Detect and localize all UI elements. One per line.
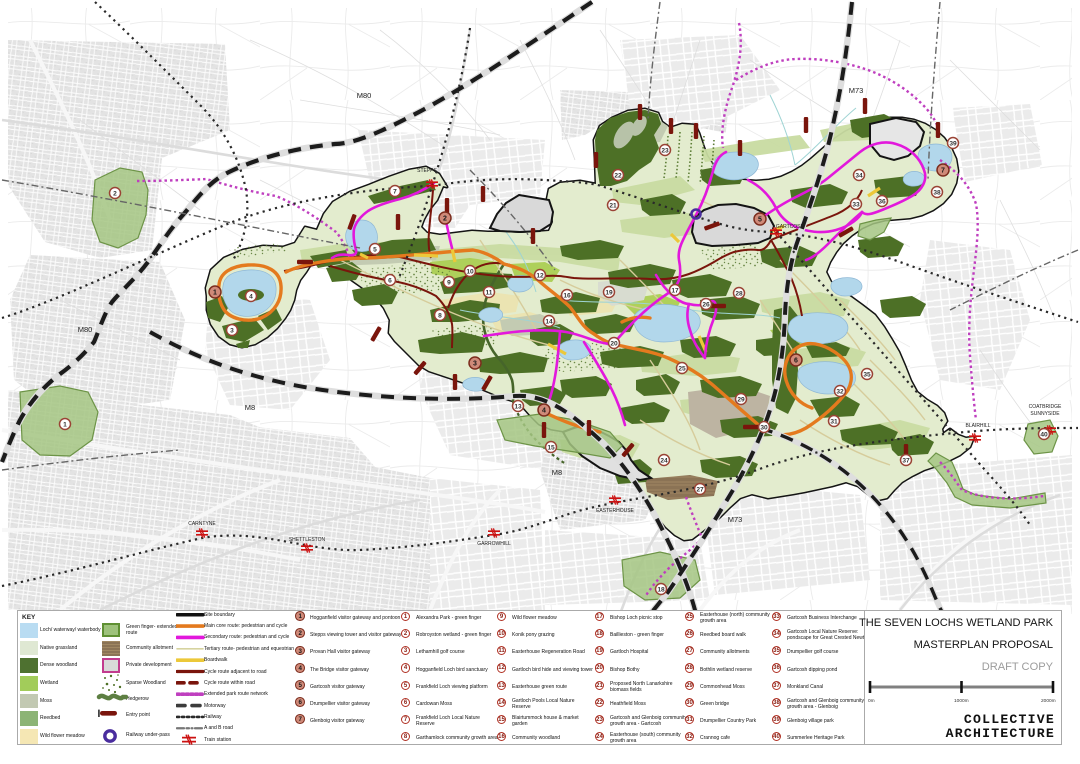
svg-text:CARNTYNE: CARNTYNE — [188, 521, 216, 527]
svg-text:22: 22 — [614, 172, 622, 179]
svg-text:26: 26 — [702, 301, 710, 308]
svg-text:12: 12 — [536, 272, 544, 279]
svg-text:33: 33 — [852, 201, 860, 208]
svg-text:2000m: 2000m — [1041, 698, 1056, 704]
svg-text:EASTERHOUSE: EASTERHOUSE — [596, 508, 634, 514]
svg-text:25: 25 — [678, 365, 686, 372]
svg-text:23: 23 — [661, 147, 669, 154]
svg-text:GARTCOSH: GARTCOSH — [776, 224, 805, 230]
svg-text:0m: 0m — [868, 698, 875, 704]
svg-text:1: 1 — [63, 421, 67, 428]
svg-text:4: 4 — [249, 293, 253, 300]
svg-text:28: 28 — [735, 290, 743, 297]
svg-text:17: 17 — [671, 287, 679, 294]
svg-text:4: 4 — [542, 407, 546, 414]
svg-text:2: 2 — [113, 190, 117, 197]
svg-text:M73: M73 — [849, 86, 864, 95]
svg-text:M8: M8 — [245, 403, 255, 412]
svg-text:24: 24 — [660, 457, 668, 464]
svg-text:3: 3 — [230, 327, 234, 334]
svg-text:30: 30 — [760, 424, 768, 431]
svg-text:16: 16 — [563, 292, 571, 299]
svg-text:40: 40 — [1040, 431, 1048, 438]
svg-text:38: 38 — [933, 189, 941, 196]
svg-text:5: 5 — [373, 246, 377, 253]
svg-text:21: 21 — [609, 202, 617, 209]
svg-text:8: 8 — [438, 312, 442, 319]
svg-text:M73: M73 — [728, 515, 743, 524]
svg-text:2: 2 — [443, 215, 447, 222]
svg-text:SUNNYSIDE: SUNNYSIDE — [1030, 411, 1060, 417]
svg-text:9: 9 — [447, 279, 451, 286]
svg-text:5: 5 — [758, 216, 762, 223]
svg-text:7: 7 — [941, 167, 945, 174]
svg-text:35: 35 — [863, 371, 871, 378]
svg-text:10: 10 — [466, 268, 474, 275]
svg-text:6: 6 — [388, 277, 392, 284]
svg-text:13: 13 — [514, 403, 522, 410]
svg-text:M8: M8 — [552, 468, 562, 477]
svg-text:18: 18 — [657, 586, 665, 593]
svg-text:36: 36 — [878, 198, 886, 205]
svg-text:GARROWHILL: GARROWHILL — [477, 541, 511, 547]
svg-text:M80: M80 — [357, 91, 372, 100]
svg-text:37: 37 — [902, 457, 910, 464]
svg-text:32: 32 — [836, 388, 844, 395]
svg-text:20: 20 — [610, 340, 618, 347]
svg-text:27: 27 — [696, 486, 704, 493]
svg-text:29: 29 — [737, 396, 745, 403]
svg-text:7: 7 — [393, 188, 397, 195]
svg-text:19: 19 — [605, 289, 613, 296]
svg-text:SHETTLESTON: SHETTLESTON — [289, 537, 326, 543]
svg-text:14: 14 — [545, 318, 553, 325]
svg-text:39: 39 — [949, 140, 957, 147]
svg-text:1000m: 1000m — [954, 698, 969, 704]
svg-text:34: 34 — [855, 172, 863, 179]
svg-text:1: 1 — [213, 289, 217, 296]
svg-text:31: 31 — [830, 418, 838, 425]
svg-text:6: 6 — [794, 357, 798, 364]
svg-text:M80: M80 — [78, 325, 93, 334]
svg-text:COATBRIDGE: COATBRIDGE — [1029, 404, 1062, 410]
svg-text:STEPPS: STEPPS — [417, 168, 437, 174]
svg-text:BLAIRHILL: BLAIRHILL — [965, 423, 990, 429]
svg-text:15: 15 — [547, 444, 555, 451]
svg-text:11: 11 — [486, 289, 493, 296]
svg-text:3: 3 — [473, 360, 477, 367]
